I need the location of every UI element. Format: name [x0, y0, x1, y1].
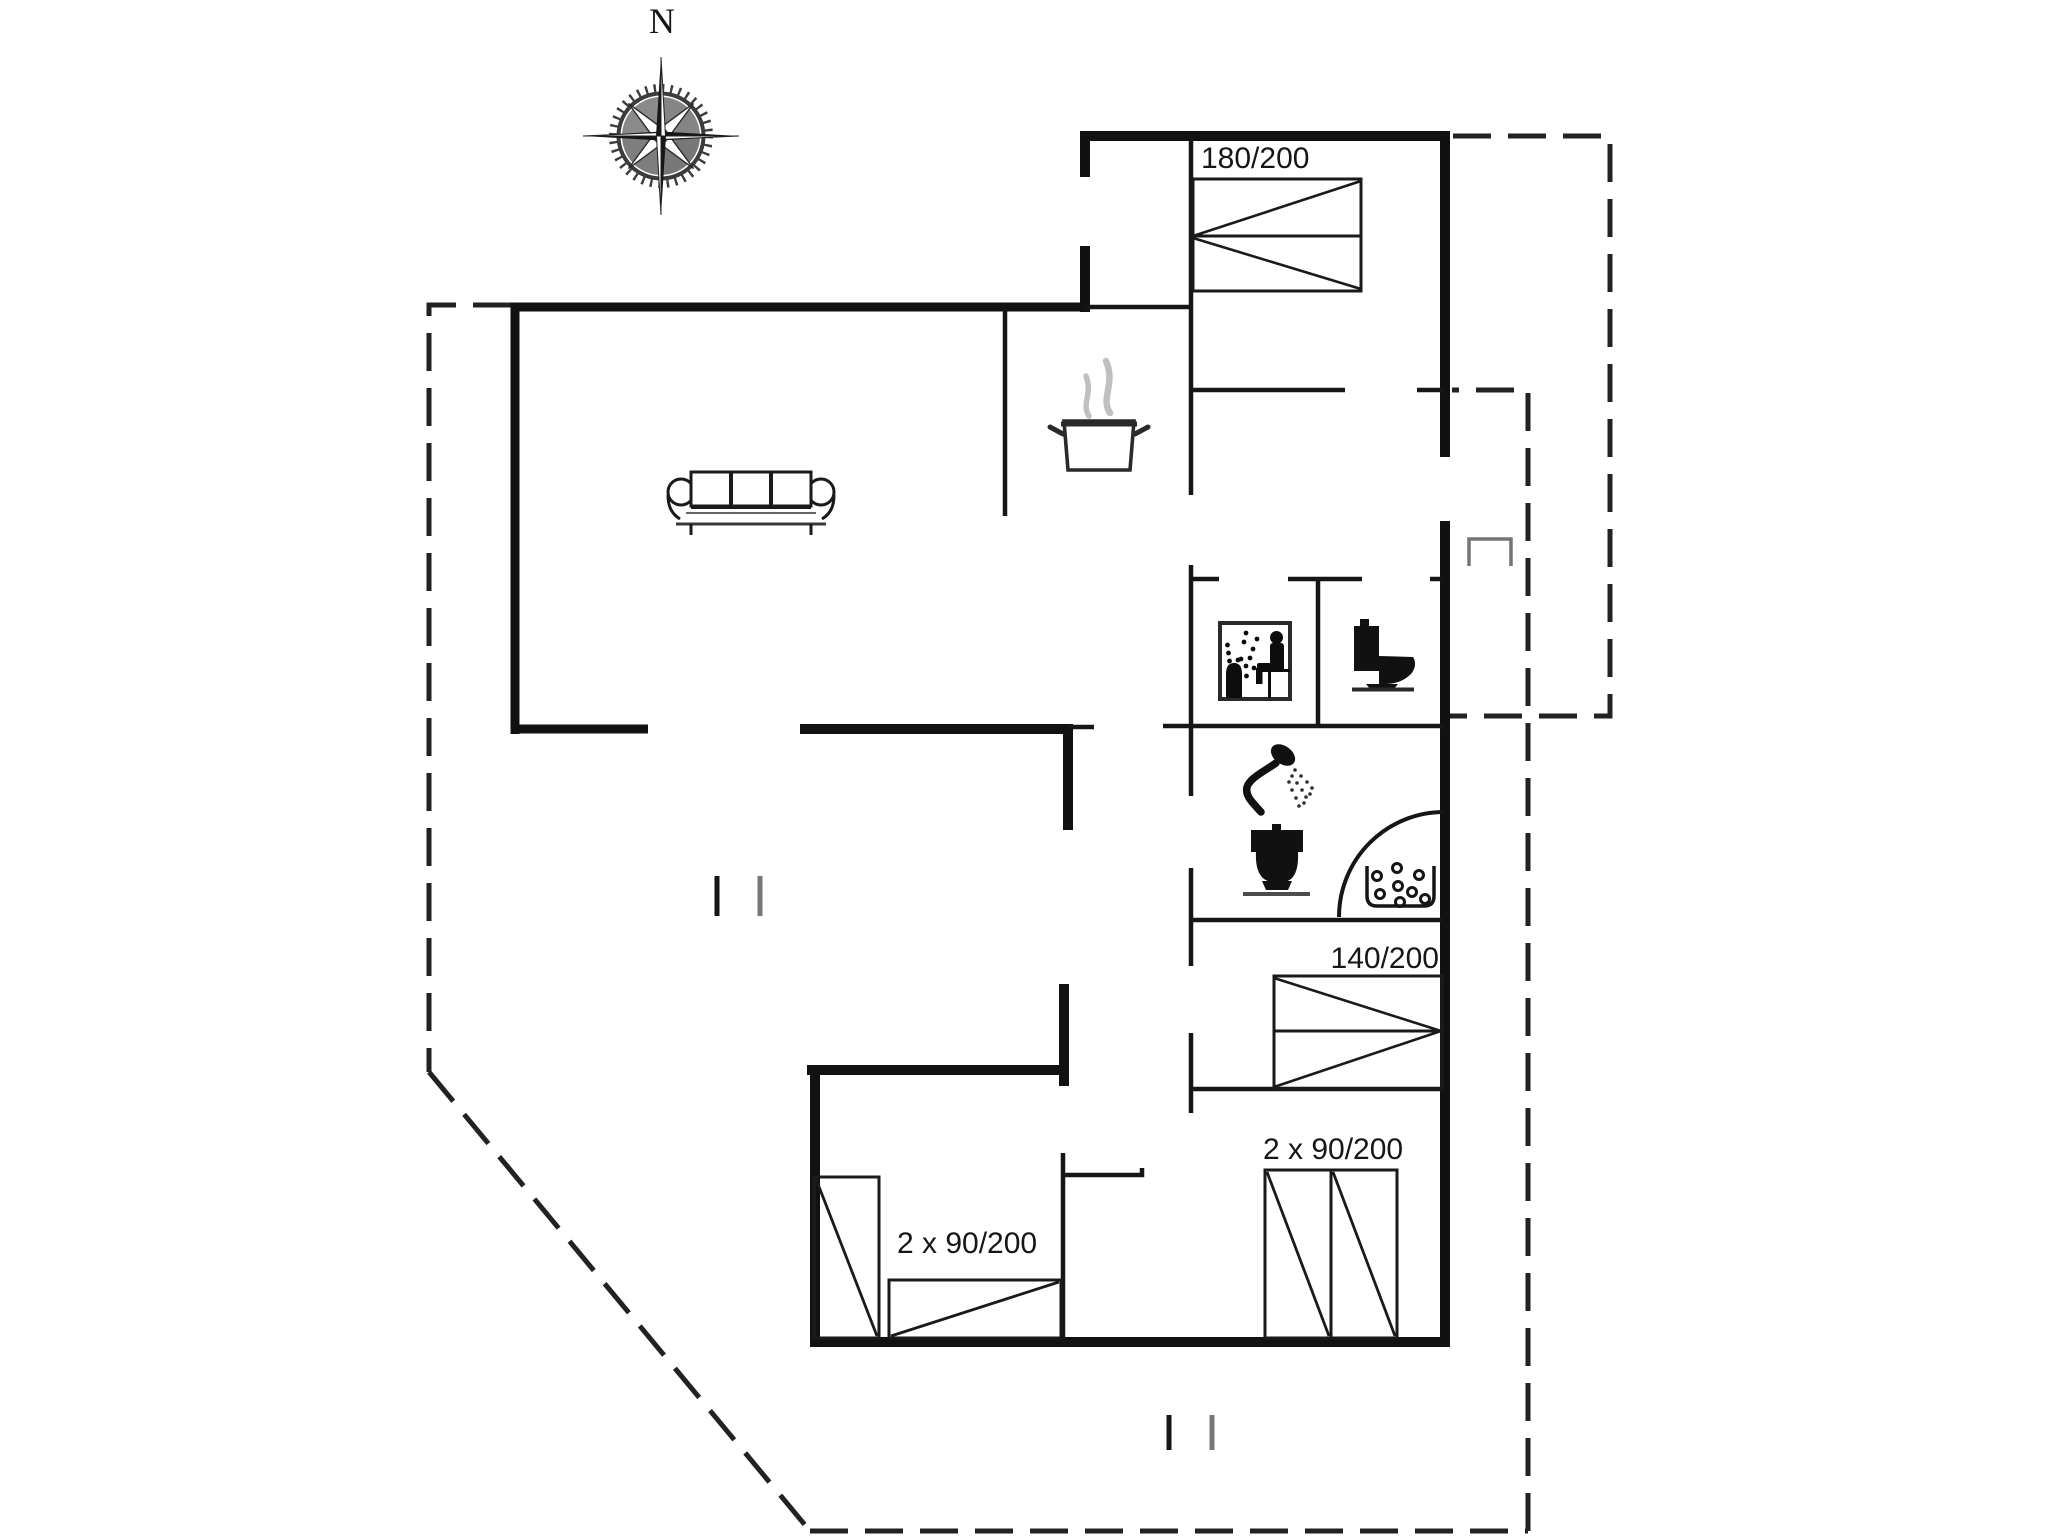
svg-text:140/200: 140/200 — [1331, 942, 1439, 975]
svg-text:2 x 90/200: 2 x 90/200 — [1263, 1133, 1403, 1166]
svg-text:2 x 90/200: 2 x 90/200 — [897, 1227, 1037, 1260]
svg-text:N: N — [649, 1, 675, 41]
svg-text:180/200: 180/200 — [1201, 142, 1309, 175]
